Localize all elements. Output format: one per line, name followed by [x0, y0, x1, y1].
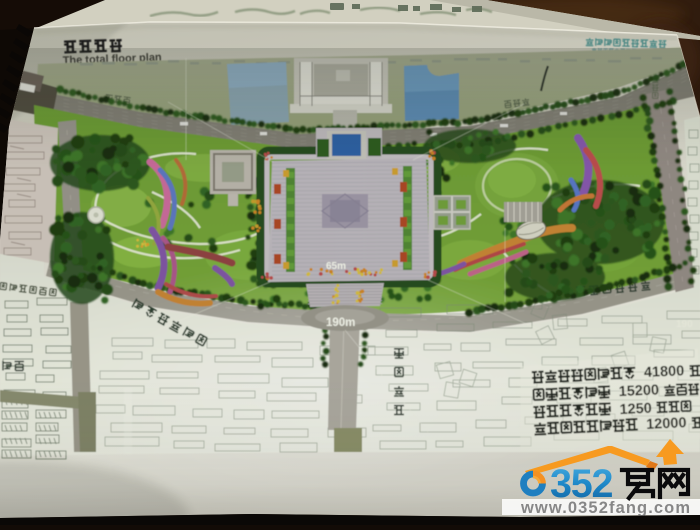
svg-text:352: 352	[550, 462, 613, 506]
